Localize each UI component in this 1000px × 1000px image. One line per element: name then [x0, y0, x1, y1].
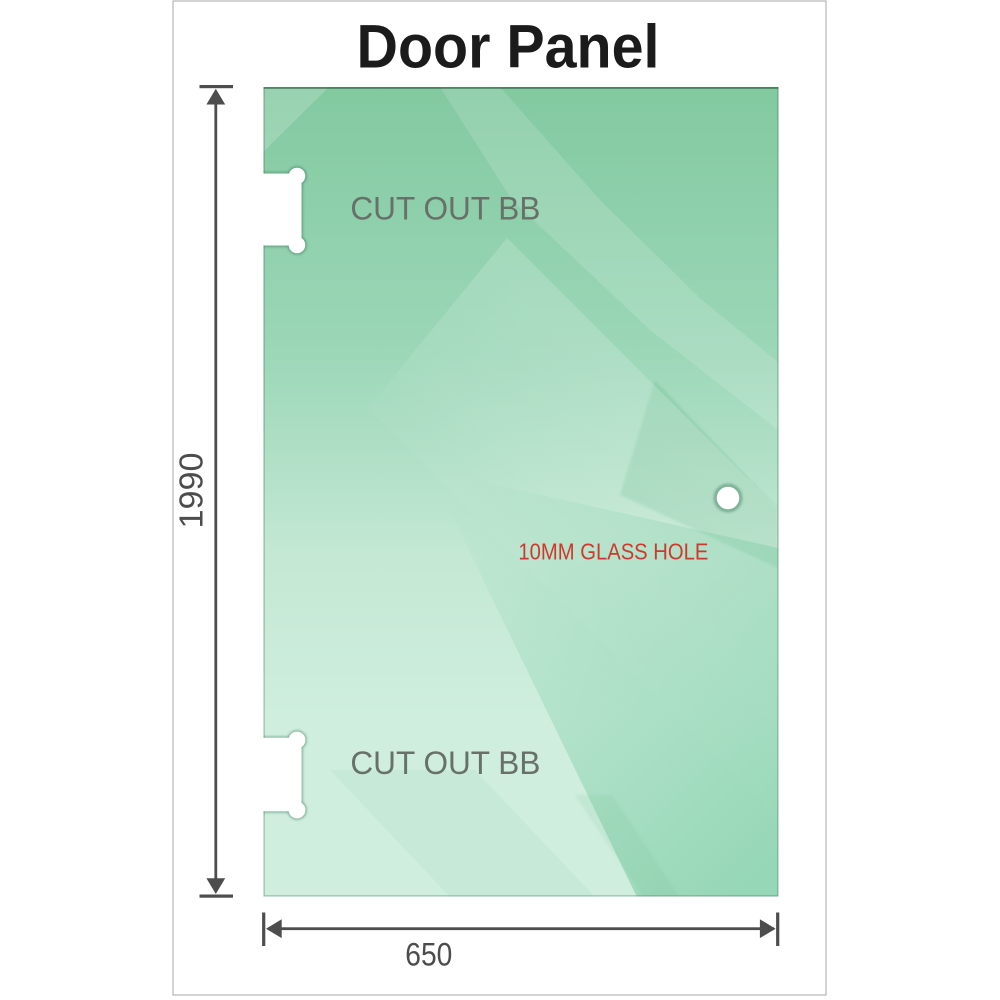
- svg-text:CUT OUT BB: CUT OUT BB: [350, 745, 540, 781]
- svg-text:Door Panel: Door Panel: [357, 13, 660, 81]
- svg-text:1990: 1990: [174, 453, 211, 529]
- svg-text:CUT OUT BB: CUT OUT BB: [350, 190, 540, 226]
- svg-text:650: 650: [405, 937, 452, 973]
- svg-text:10MM GLASS HOLE: 10MM GLASS HOLE: [518, 539, 708, 565]
